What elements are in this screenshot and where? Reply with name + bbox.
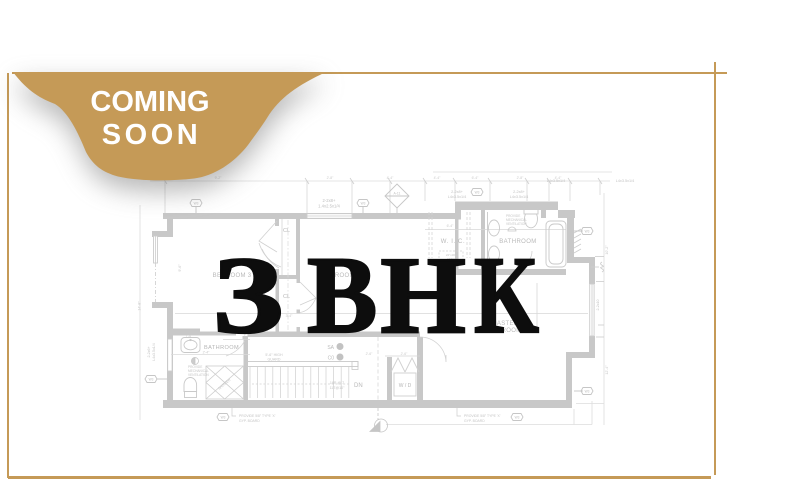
svg-text:4'-4": 4'-4" [434, 176, 442, 180]
svg-text:2-2x8+: 2-2x8+ [451, 190, 463, 194]
svg-text:GYP. BOARD: GYP. BOARD [239, 419, 260, 423]
svg-text:L4x3.5x1/4: L4x3.5x1/4 [448, 195, 467, 199]
svg-text:2'-8": 2'-8" [517, 176, 525, 180]
svg-text:11T@10": 11T@10" [330, 386, 346, 390]
svg-text:14'-8": 14'-8" [138, 301, 142, 311]
svg-text:2'-4": 2'-4" [203, 351, 211, 355]
svg-text:2-2x8+: 2-2x8+ [513, 190, 525, 194]
svg-text:2-2x10: 2-2x10 [596, 300, 600, 311]
svg-text:10'-2": 10'-2" [605, 245, 609, 255]
svg-text:2'-8": 2'-8" [154, 303, 162, 307]
svg-text:2-2x6+: 2-2x6+ [147, 346, 151, 357]
svg-text:VENTILATION: VENTILATION [188, 373, 209, 377]
svg-text:W3: W3 [149, 377, 154, 381]
svg-text:PROVIDE 5/8" TYPE 'X': PROVIDE 5/8" TYPE 'X' [239, 414, 276, 418]
svg-text:W / D: W / D [399, 383, 412, 389]
svg-text:16R @ 7: 16R @ 7 [330, 381, 344, 385]
svg-text:6'-4": 6'-4" [447, 224, 455, 228]
svg-text:4'-4": 4'-4" [555, 176, 563, 180]
svg-text:W3: W3 [585, 229, 590, 233]
svg-text:GYP. BOARD: GYP. BOARD [464, 419, 485, 423]
svg-text:7'-6": 7'-6" [186, 334, 194, 338]
svg-text:W3: W3 [475, 190, 480, 194]
svg-text:SHOWER: SHOWER [217, 377, 232, 390]
svg-text:12'-4": 12'-4" [605, 365, 609, 375]
svg-text:W3: W3 [361, 201, 366, 205]
svg-text:DN: DN [354, 383, 363, 389]
svg-text:L4x3.5x1/4: L4x3.5x1/4 [616, 179, 635, 183]
svg-text:4'-4": 4'-4" [387, 176, 395, 180]
svg-text:W3: W3 [515, 415, 520, 419]
svg-text:A-11: A-11 [394, 192, 401, 196]
svg-text:W3: W3 [585, 389, 590, 393]
svg-text:W3: W3 [221, 415, 226, 419]
svg-text:PROVIDE 5/8" TYPE 'X': PROVIDE 5/8" TYPE 'X' [464, 414, 501, 418]
svg-text:9'-6": 9'-6" [178, 264, 182, 272]
svg-text:L4x3.5x1/4: L4x3.5x1/4 [510, 195, 529, 199]
svg-text:6'-4": 6'-4" [472, 176, 480, 180]
svg-text:VENTILATION: VENTILATION [506, 222, 527, 226]
svg-text:L4x3.5x1/4: L4x3.5x1/4 [152, 343, 156, 361]
